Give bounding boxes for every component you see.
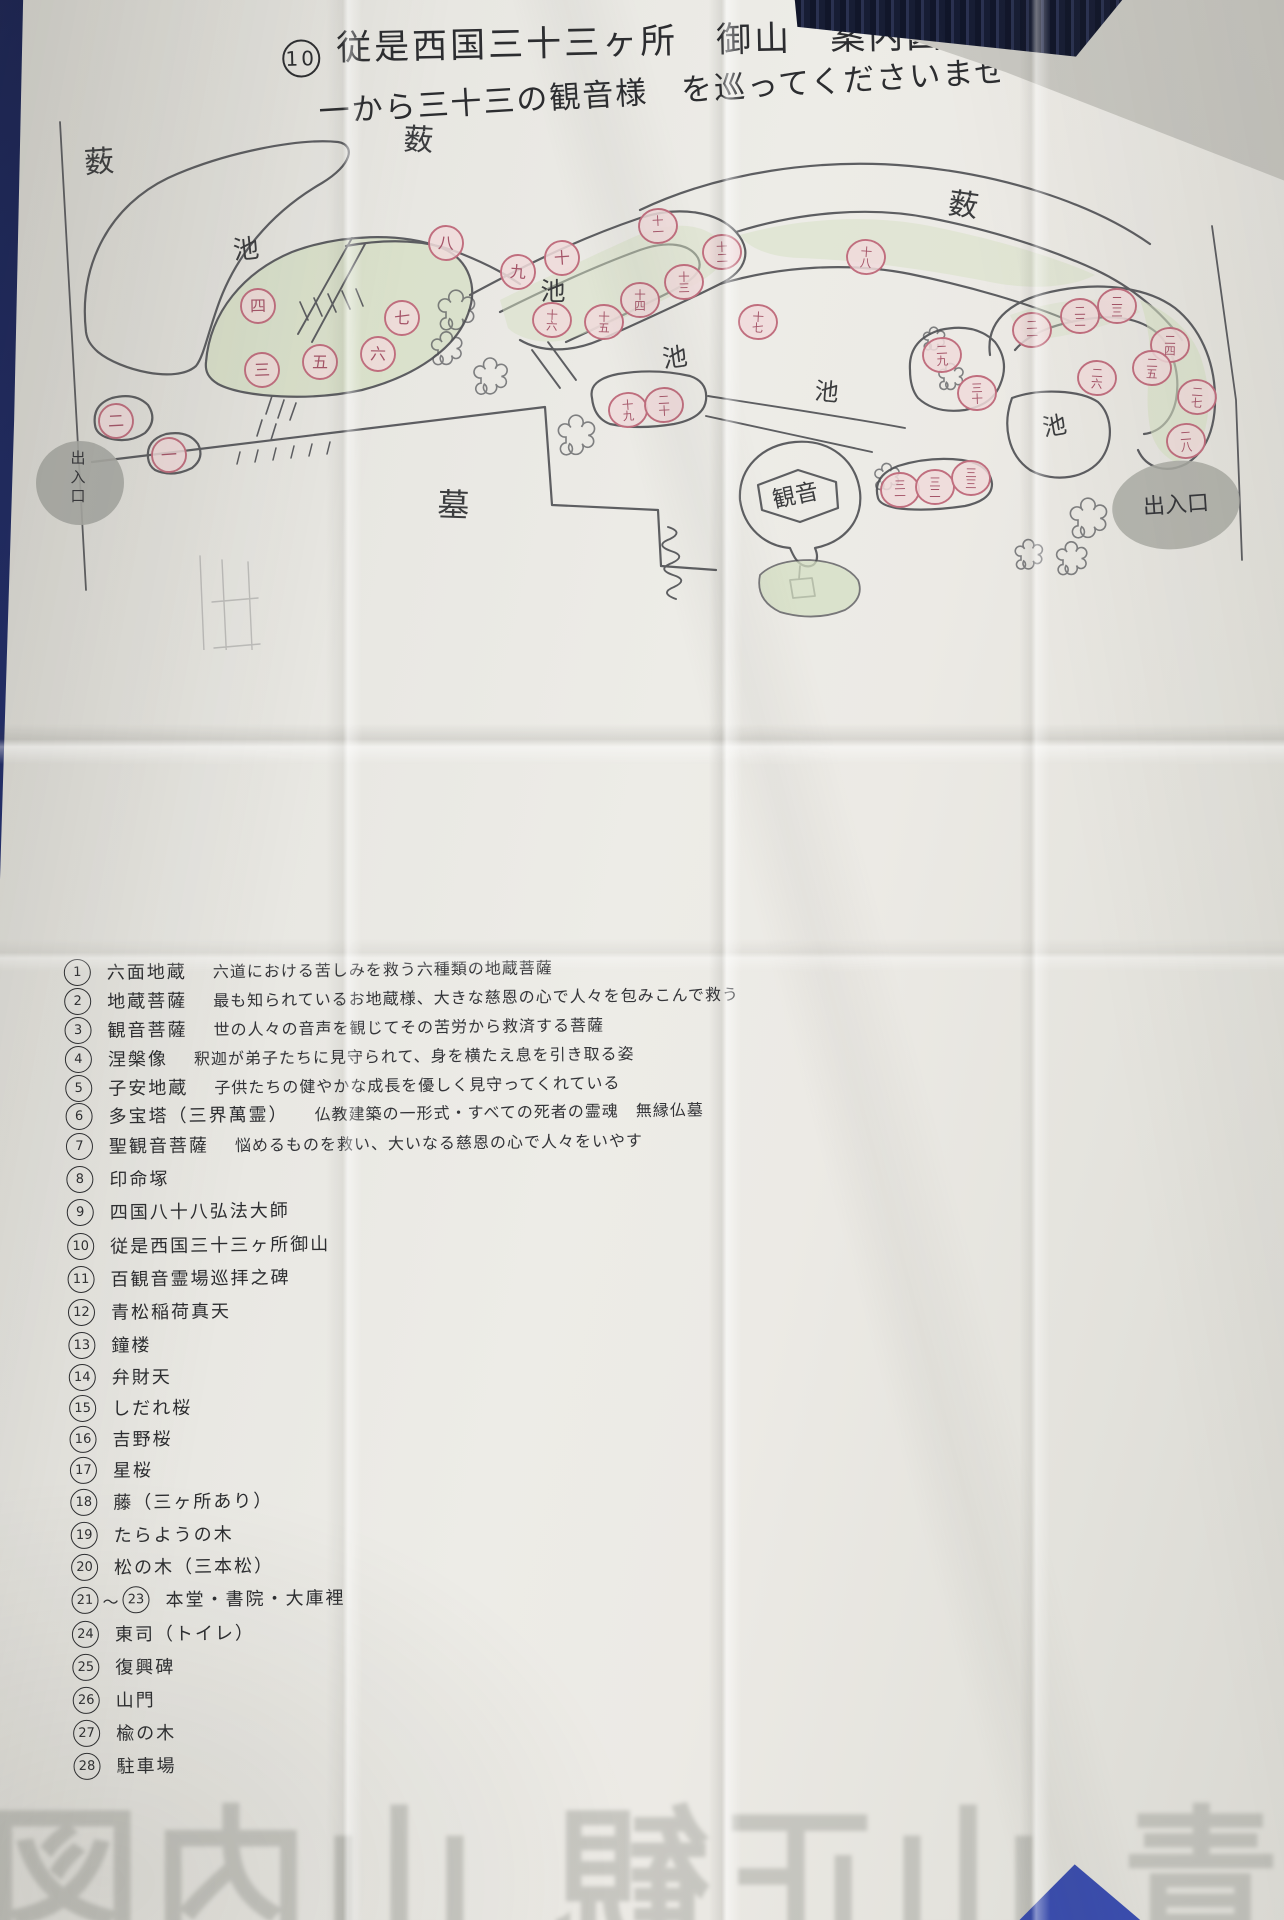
bleed-through-text: 青 山正観 山内図 [10, 1755, 1280, 1920]
shrub-doodle [474, 358, 507, 394]
station-number: 十九 [621, 398, 635, 424]
legend-item-20: 20松の木（三本松） [71, 1552, 274, 1581]
map-station-4: 四 [241, 289, 276, 324]
legend-number-circle: 23 [122, 1586, 149, 1613]
map-area-label: 池 [232, 234, 261, 267]
map-area-label: 薮 [403, 122, 435, 159]
legend-item-25: 25復興碑 [72, 1653, 175, 1681]
station-number: 二二 [1074, 304, 1086, 329]
legend-number-circle: 14 [69, 1364, 96, 1391]
legend-item-description: 悩めるものを救い、大いなる慈恩の心で人々をいやす [235, 1127, 643, 1156]
shrub-doodle [1015, 540, 1042, 569]
legend-item-name: 楡の木 [116, 1719, 176, 1746]
map-station-26: 二六 [1077, 360, 1117, 396]
station-number: 二五 [1146, 356, 1158, 381]
legend-number-circle: 19 [71, 1522, 98, 1549]
entrance-label: 出入口 [70, 449, 85, 505]
station-number: 七 [394, 308, 411, 328]
photo-of-temple-guide-map: { "title": { "prefix_num": "10", "line1"… [0, 0, 1284, 1920]
legend-item-16: 16吉野桜 [69, 1425, 172, 1453]
legend-item-name: 復興碑 [115, 1653, 175, 1680]
greenery-patches [500, 219, 1209, 616]
legend-number-circle: 10 [67, 1233, 94, 1260]
map-station-6: 六 [361, 337, 396, 372]
station-number: 二六 [1091, 366, 1104, 392]
map-station-14: 十四 [621, 283, 659, 317]
station-number: 二一 [1026, 318, 1039, 343]
station-number: 十八 [859, 245, 873, 271]
entrance-marker: 出入口 [36, 441, 124, 525]
map-area-label: 池 [1040, 410, 1068, 442]
map-station-13: 十三 [665, 265, 704, 300]
legend-item-10: 10従是西国三十三ヶ所御山 [67, 1230, 330, 1260]
map-area-label: 墓 [437, 485, 470, 524]
legend-item-name: 藤（三ヶ所あり） [113, 1487, 273, 1515]
legend-item-27: 27楡の木 [73, 1719, 176, 1747]
map-station-22: 二二 [1061, 299, 1100, 334]
legend-item-9: 9四国八十八弘法大師 [67, 1196, 290, 1226]
map-station-5: 五 [303, 345, 337, 379]
station-number: 十三 [678, 270, 690, 295]
station-number: 三十 [971, 381, 983, 406]
shrub-doodle [1070, 498, 1106, 538]
station-number: 三 [254, 360, 271, 380]
station-number: 三二 [929, 475, 941, 500]
legend-item-name: 六面地蔵 [107, 958, 187, 985]
station-number: 十二 [716, 240, 728, 265]
map-station-20: 二十 [644, 387, 684, 423]
map-station-31: 三一 [881, 473, 920, 508]
legend-item-name: 涅槃像 [108, 1045, 168, 1072]
map-station-16: 十六 [532, 302, 571, 337]
entrance-label: 出入口 [1142, 491, 1210, 521]
legend-number-circle: 2 [64, 988, 91, 1015]
entrance-marker: 出入口 [1107, 454, 1245, 557]
legend-item-name: 従是西国三十三ヶ所御山 [110, 1230, 330, 1259]
station-number: 十七 [752, 310, 765, 336]
legend-item-description: 六道における苦しみを救う六種類の地蔵菩薩 [213, 954, 553, 982]
legend-number-circle: 21 [71, 1587, 98, 1614]
legend-item-15: 15しだれ桜 [69, 1394, 192, 1423]
legend-item-name: 本堂・書院・大庫裡 [165, 1584, 345, 1612]
legend-number-circle: 3 [64, 1017, 91, 1044]
station-number: 十六 [546, 308, 558, 333]
legend-number-circle: 6 [65, 1103, 92, 1130]
map-station-1: 一 [151, 437, 187, 473]
legend-number-circle: 9 [67, 1199, 94, 1226]
legend-number-circle: 28 [73, 1753, 100, 1780]
map-station-9: 九 [500, 254, 536, 290]
station-number: 四 [250, 296, 266, 315]
legend-number-circle: 8 [66, 1166, 93, 1193]
legend-number-circle: 16 [69, 1426, 96, 1453]
legend-item-21: 21〜23本堂・書院・大庫裡 [71, 1584, 345, 1614]
legend-range-join: 〜 [102, 1588, 118, 1612]
legend-item-name: 地蔵菩薩 [107, 987, 187, 1014]
legend-item-name: 多宝塔（三界萬霊） [108, 1100, 288, 1128]
legend-number-circle: 25 [72, 1654, 99, 1681]
map-area-label: 池 [540, 277, 565, 306]
legend-item-description: 仏教建築の一形式・すべての死者の霊魂 無縁仏墓 [314, 1096, 704, 1125]
map-area-label: 池 [660, 341, 689, 373]
station-number: 二 [108, 411, 125, 431]
legend-item-name: 百観音霊場巡拝之碑 [110, 1263, 290, 1291]
legend-item-26: 26山門 [73, 1686, 156, 1714]
map-station-33: 三三 [952, 461, 991, 496]
map-station-30: 三十 [957, 375, 996, 410]
legend-item-description: 子供たちの健やかな成長を優しく見守ってくれている [214, 1069, 621, 1098]
legend-item-name: 弁財天 [112, 1363, 172, 1390]
station-number: 十 [553, 248, 570, 268]
legend-item-name: 印命塚 [109, 1165, 169, 1192]
legend-number-circle: 20 [71, 1554, 98, 1581]
legend-number-circle: 12 [68, 1299, 95, 1326]
station-number: 二七 [1190, 385, 1203, 411]
legend-number-circle: 15 [69, 1395, 96, 1422]
legend-item-18: 18藤（三ヶ所あり） [70, 1487, 273, 1516]
station-number: 六 [370, 344, 386, 363]
title-circled-number: 10 [282, 39, 321, 78]
legend-item-name: 観音菩薩 [107, 1016, 187, 1043]
station-number: 九 [509, 262, 526, 282]
station-number: 十五 [598, 310, 610, 335]
station-number: 三一 [894, 478, 906, 503]
legend-item-name: 青松稲荷真天 [111, 1297, 231, 1324]
legend-number-circle: 18 [70, 1489, 97, 1516]
legend-item-14: 14弁財天 [69, 1363, 172, 1391]
shrub-doodle [1057, 542, 1087, 575]
station-number: 二三 [1111, 294, 1123, 319]
legend-item-13: 13鐘楼 [68, 1331, 151, 1359]
legend-item-name: たらようの木 [114, 1520, 234, 1547]
legend-item-17: 17星桜 [70, 1456, 153, 1484]
map-station-8: 八 [428, 225, 464, 261]
legend-item-8: 8印命塚 [66, 1165, 169, 1193]
legend-number-circle: 5 [65, 1075, 92, 1102]
station-number: 五 [312, 353, 328, 372]
legend-item-name: 鐘楼 [111, 1331, 151, 1357]
station-number: 十一 [652, 214, 665, 240]
legend-item-28: 28駐車場 [73, 1752, 176, 1780]
legend-item-24: 24東司（トイレ） [72, 1619, 255, 1648]
legend-item-name: 山門 [116, 1686, 156, 1712]
legend-number-circle: 26 [73, 1687, 100, 1714]
map-station-17: 十七 [738, 304, 778, 340]
map-area-label: 観音 [770, 479, 820, 514]
station-number: 八 [438, 233, 455, 253]
map-station-29: 二九 [922, 337, 962, 373]
legend-item-description: 最も知られているお地蔵様、大きな慈恩の心で人々を包みこんで救う [213, 981, 739, 1011]
map-area-label: 薮 [946, 186, 981, 225]
legend-number-circle: 4 [65, 1046, 92, 1073]
legend-item-name: 松の木（三本松） [114, 1552, 274, 1580]
legend-number-circle: 11 [67, 1266, 94, 1293]
map-station-19: 十九 [608, 392, 648, 429]
legend-item-name: 吉野桜 [112, 1425, 172, 1452]
map-station-2: 二 [98, 403, 134, 439]
map-station-15: 十五 [585, 305, 624, 340]
legend-number-circle: 27 [73, 1720, 100, 1747]
station-number: 二八 [1179, 429, 1193, 455]
legend-item-12: 12青松稲荷真天 [68, 1297, 231, 1326]
legend-number-circle: 7 [66, 1133, 93, 1160]
map-area-label: 池 [814, 377, 840, 407]
legend-item-name: 四国八十八弘法大師 [110, 1196, 290, 1224]
legend-item-name: 星桜 [113, 1456, 153, 1482]
map-station-3: 三 [244, 352, 279, 387]
map-station-7: 七 [384, 300, 419, 335]
map-station-12: 十二 [702, 234, 741, 269]
legend-number-circle: 1 [64, 959, 91, 986]
legend-item-description: 世の人々の音声を観じてその苦労から救済する菩薩 [213, 1012, 604, 1041]
station-number: 二四 [1164, 333, 1176, 358]
map-area-label: 薮 [83, 144, 115, 181]
legend-number-circle: 24 [72, 1621, 99, 1648]
station-number: 十四 [634, 288, 646, 313]
legend-item-name: 駐車場 [116, 1752, 176, 1779]
legend-number-circle: 13 [68, 1332, 95, 1359]
station-number: 一 [160, 445, 177, 465]
legend-item-19: 19たらようの木 [71, 1520, 234, 1549]
legend-item-name: 聖観音菩薩 [109, 1131, 209, 1158]
station-number: 二十 [658, 393, 671, 419]
legend-item-name: しだれ桜 [112, 1394, 192, 1421]
legend-item-11: 11百観音霊場巡拝之碑 [67, 1263, 290, 1293]
legend-item-name: 子安地蔵 [108, 1074, 188, 1101]
map-station-21: 二一 [1012, 312, 1051, 347]
legend-item-name: 東司（トイレ） [115, 1619, 255, 1647]
map-station-11: 十一 [638, 208, 678, 244]
map-station-23: 二三 [1098, 289, 1136, 323]
shrub-doodle [558, 415, 594, 455]
station-number: 三三 [965, 466, 977, 491]
legend-item-description: 釈迦が弟子たちに見守られて、身を横たえ息を引き取る姿 [194, 1040, 635, 1069]
station-number: 二九 [936, 343, 949, 369]
legend-number-circle: 17 [70, 1457, 97, 1484]
map-station-32: 三二 [916, 470, 954, 504]
map-station-25: 二五 [1132, 350, 1171, 385]
